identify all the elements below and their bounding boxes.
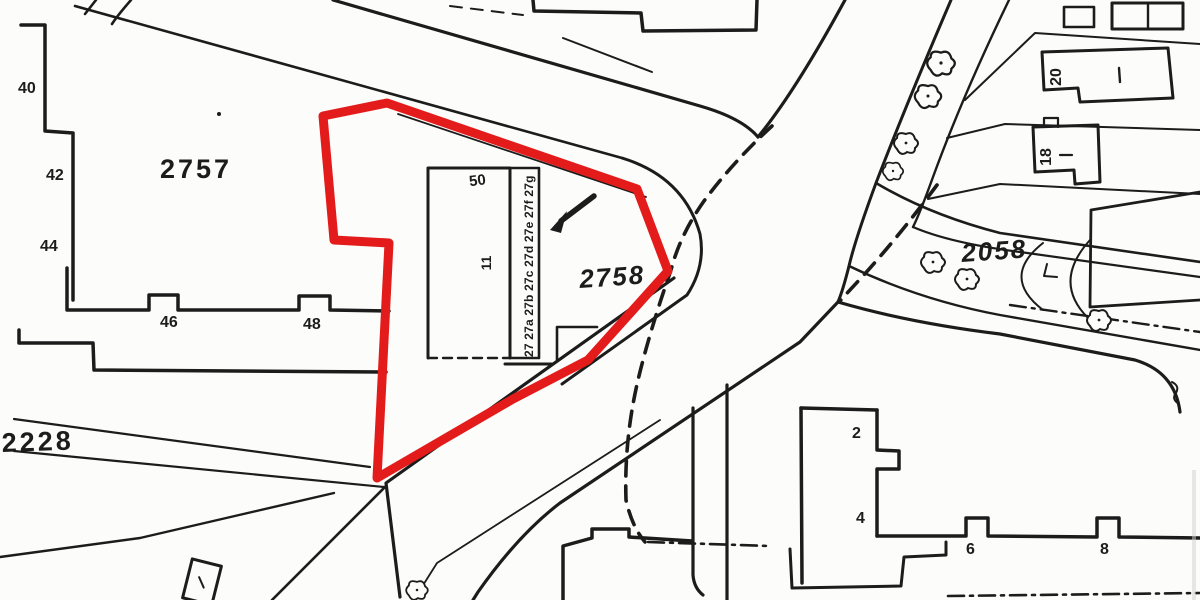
parcel-label-2058: 2058 (959, 233, 1028, 268)
house-number-46: 46 (160, 314, 178, 331)
building-top-center (533, 0, 757, 31)
building-south-center (563, 529, 692, 600)
parcel-label-2228: 2228 (1, 425, 74, 457)
tree-icon (955, 269, 979, 290)
house-number-40: 40 (18, 80, 36, 97)
buildings-north-east (1033, 3, 1200, 307)
house-number-2: 2 (852, 425, 861, 442)
house-number-4: 4 (856, 510, 865, 527)
cadastral-map-scan: 2757 2758 2058 2228 40 42 44 46 48 50 11… (0, 0, 1200, 600)
house-number-18: 18 (1038, 148, 1055, 166)
arrow-icon (550, 196, 594, 233)
building-mark-11: 11 (478, 255, 494, 270)
tree-icon (894, 133, 918, 154)
small-building (183, 559, 222, 600)
terrace-unit-numbers: 27 27a 27b 27c 27d 27e 27f 27g (522, 175, 536, 357)
tree-icon (1087, 310, 1111, 331)
boundary-dashed-line (626, 126, 1200, 596)
labels: 2757 2758 2058 2228 40 42 44 46 48 50 11… (1, 68, 1109, 558)
scan-edge-artifact (1192, 470, 1196, 600)
road-lines (0, 0, 1200, 600)
house-number-20: 20 (1048, 68, 1065, 86)
parcel-label-2758: 2758 (577, 259, 646, 294)
house-number-48: 48 (303, 316, 321, 333)
tree-icon (915, 85, 941, 108)
house-number-8: 8 (1100, 541, 1109, 558)
parcel-label-2757: 2757 (160, 154, 232, 184)
tree-icon (921, 252, 945, 273)
tree-icon (883, 163, 903, 181)
house-number-6: 6 (966, 541, 975, 558)
plot-number-50: 50 (468, 171, 487, 190)
house-number-44: 44 (40, 238, 58, 255)
house-number-42: 42 (46, 167, 64, 184)
building-50 (428, 168, 597, 364)
map-canvas: 2757 2758 2058 2228 40 42 44 46 48 50 11… (0, 0, 1200, 600)
tree-icon (406, 581, 428, 600)
tree-icon (927, 52, 955, 76)
